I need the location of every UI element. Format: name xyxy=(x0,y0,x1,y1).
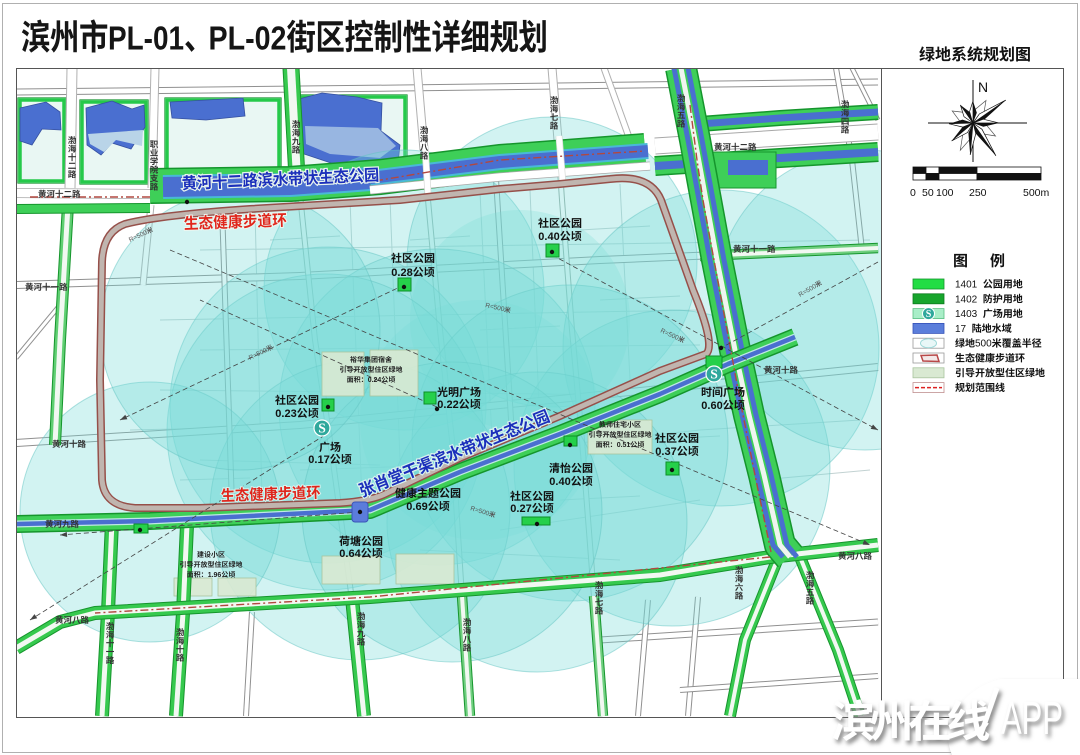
svg-text:0.17: 0.17 xyxy=(308,454,329,466)
svg-text:1401: 1401 xyxy=(955,280,978,291)
svg-text:PL-01: PL-01 xyxy=(108,20,184,57)
svg-text:S: S xyxy=(318,420,326,435)
svg-text:0.28: 0.28 xyxy=(391,267,412,279)
svg-text:0.51: 0.51 xyxy=(617,442,631,449)
svg-text:N: N xyxy=(978,79,988,95)
svg-text:S: S xyxy=(926,309,932,320)
svg-text:0.24: 0.24 xyxy=(368,377,382,384)
svg-text:APP: APP xyxy=(1001,692,1063,744)
svg-text:0.22: 0.22 xyxy=(437,399,458,411)
svg-text:0.69: 0.69 xyxy=(406,501,427,513)
svg-text:1402: 1402 xyxy=(955,294,978,305)
svg-text:500m: 500m xyxy=(1023,187,1050,199)
svg-text:0.60: 0.60 xyxy=(701,400,722,412)
svg-text:0: 0 xyxy=(910,187,916,199)
svg-text:0.40: 0.40 xyxy=(549,476,570,488)
svg-text:100: 100 xyxy=(936,187,954,199)
svg-text:1403: 1403 xyxy=(955,309,978,320)
svg-text:250: 250 xyxy=(969,187,987,199)
svg-text:PL-02: PL-02 xyxy=(209,20,287,57)
svg-text:0.27: 0.27 xyxy=(510,503,531,515)
svg-text:0.40: 0.40 xyxy=(538,231,559,243)
svg-text:0.23: 0.23 xyxy=(275,408,296,420)
svg-text:50: 50 xyxy=(922,187,934,199)
svg-text:500: 500 xyxy=(975,339,992,350)
svg-text:S: S xyxy=(710,366,718,381)
svg-text:17: 17 xyxy=(955,324,967,335)
svg-text:0.64: 0.64 xyxy=(339,548,361,560)
svg-text:0.37: 0.37 xyxy=(655,446,676,458)
svg-text:1.96: 1.96 xyxy=(208,572,222,579)
